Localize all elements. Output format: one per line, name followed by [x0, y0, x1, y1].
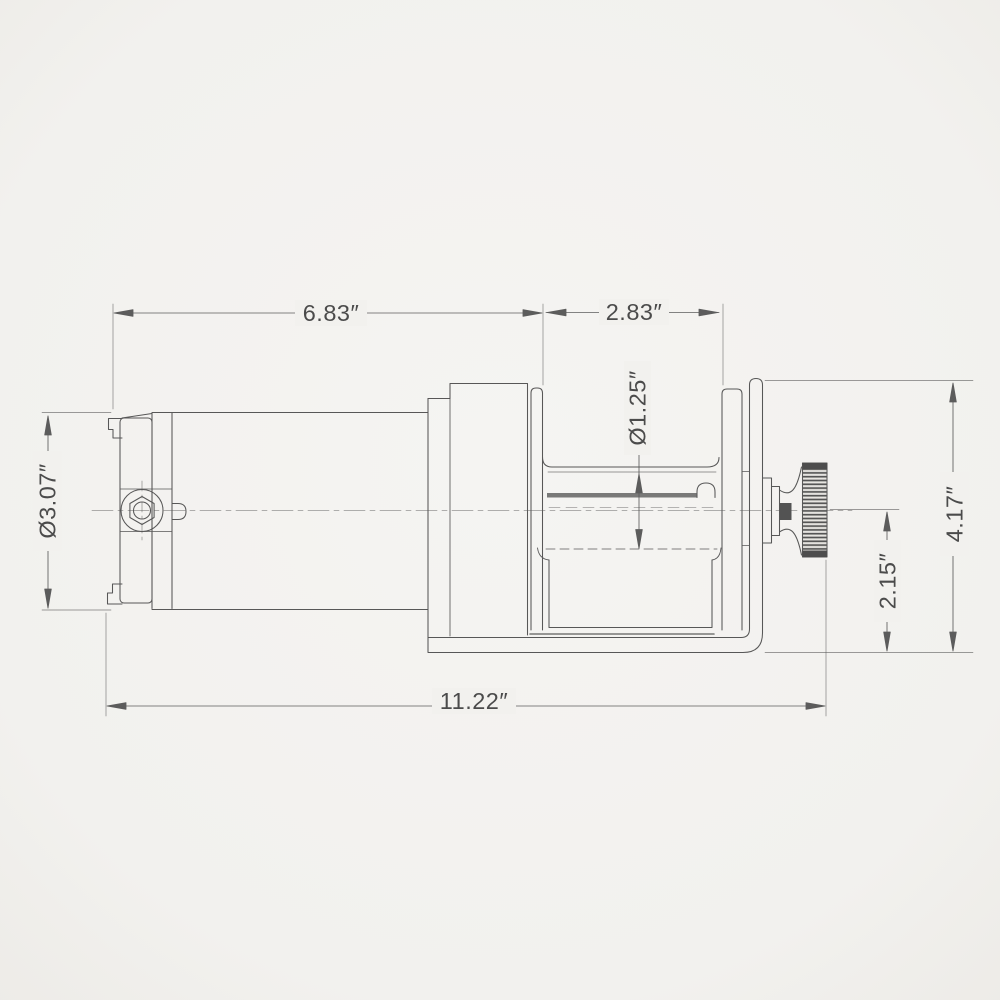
knob-shaft	[780, 503, 792, 520]
screenshot-canvas: 6.83″ 2.83″ Ø1.25″	[0, 0, 1000, 1000]
dimension-label: 11.22″	[440, 688, 508, 714]
dimension-label: 4.17″	[942, 486, 968, 543]
knob-top-band	[803, 463, 828, 470]
paper-background	[0, 0, 1000, 1000]
dimension-label: 2.83″	[606, 299, 663, 325]
winch-technical-drawing: 6.83″ 2.83″ Ø1.25″	[0, 0, 1000, 1000]
knob-bottom-band	[803, 551, 828, 558]
dimension-label: 6.83″	[303, 300, 360, 326]
knurled-knob	[803, 463, 828, 557]
dimension-label: 2.15″	[875, 553, 901, 610]
dimension-label: Ø1.25″	[625, 370, 651, 445]
cable-layer	[547, 493, 697, 498]
dimension-label: Ø3.07″	[35, 463, 61, 538]
